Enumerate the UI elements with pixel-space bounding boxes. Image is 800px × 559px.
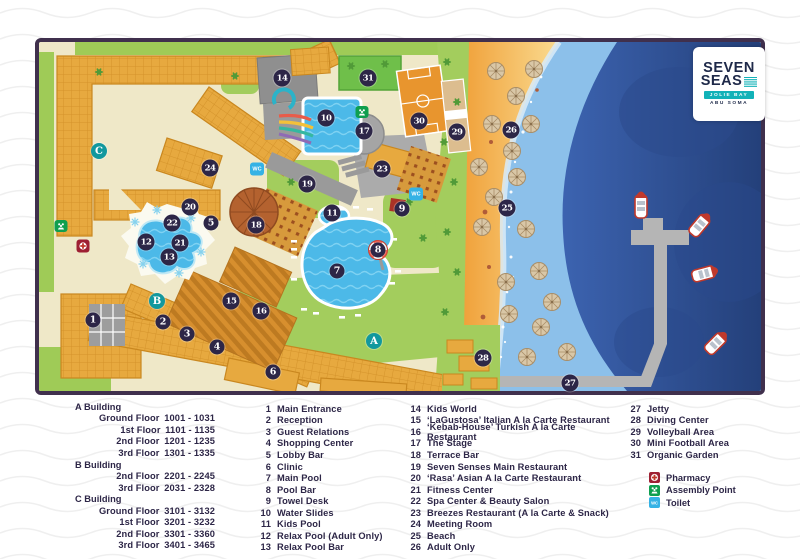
- legend-item-label: Guest Relations: [277, 427, 349, 437]
- legend-symbols: PharmacyAssembly PointWCToilet: [649, 472, 795, 510]
- building-floor-row: 2nd Floor 2201 - 2245: [35, 470, 215, 482]
- legend-items-column-2: 14Kids World15‘LaGustosa’ Italian A la C…: [403, 403, 623, 553]
- legend-item: 29Volleyball Area: [625, 426, 795, 438]
- legend-item-number: 21: [403, 485, 421, 495]
- building-name: A Building: [75, 401, 215, 413]
- legend-item: 18Terrace Bar: [403, 449, 623, 461]
- legend-item: 31Organic Garden: [625, 449, 795, 461]
- legend-symbol-row: WCToilet: [649, 497, 795, 510]
- map-marker-28: 28: [475, 350, 492, 367]
- legend-item-number: 17: [403, 438, 421, 448]
- pharmacy-icon-box: [649, 472, 660, 483]
- legend-item: 9Towel Desk: [255, 495, 405, 507]
- legend-item-label: Main Pool: [277, 473, 322, 483]
- legend-item-number: 27: [625, 404, 641, 414]
- map-marker-26: 26: [503, 122, 520, 139]
- map-marker-11: 11: [324, 205, 341, 222]
- map-marker-22: 22: [164, 215, 181, 232]
- legend-item-label: Lobby Bar: [277, 450, 324, 460]
- pharmacy-icon: [79, 242, 88, 251]
- legend-item-label: Diving Center: [647, 415, 709, 425]
- seven-seas-logo: SEVEN SEAS JOLIE BAY ABU SOMA: [693, 47, 765, 121]
- legend-symbol-label: Pharmacy: [666, 473, 710, 483]
- legend-item-number: 14: [403, 404, 421, 414]
- legend-item-number: 31: [625, 450, 641, 460]
- legend-item-number: 6: [255, 462, 271, 472]
- legend-item-label: Mini Football Area: [647, 438, 729, 448]
- building-name: C Building: [75, 493, 215, 505]
- legend-item: 1Main Entrance: [255, 403, 405, 415]
- assembly-point-icon: [57, 222, 66, 231]
- legend-item: 23Breezes Restaurant (A la Carte & Snack…: [403, 507, 623, 519]
- map-marker-18: 18: [248, 217, 265, 234]
- legend-item-number: 22: [403, 496, 421, 506]
- building-floor-row: 3rd Floor 1301 - 1335: [35, 447, 215, 459]
- legend-item-number: 11: [255, 519, 271, 529]
- pharmacy-icon: [650, 473, 659, 482]
- legend-item: 4Shopping Center: [255, 438, 405, 450]
- map-marker-31: 31: [360, 70, 377, 87]
- legend-item-number: 8: [255, 485, 271, 495]
- legend-item-number: 26: [403, 542, 421, 552]
- map-marker-13: 13: [161, 249, 178, 266]
- map-marker-3: 3: [180, 327, 195, 342]
- legend-item: 22Spa Center & Beauty Salon: [403, 495, 623, 507]
- legend-item-label: ‘Rasa’ Asian A la Carte Restaurant: [427, 473, 581, 483]
- legend-items-column-1: 1Main Entrance2Reception3Guest Relations…: [255, 403, 405, 553]
- map-marker-6: 6: [266, 365, 281, 380]
- logo-waves-icon: [744, 76, 757, 88]
- map-building-marker-C: C: [91, 143, 107, 159]
- legend-symbol-label: Assembly Point: [666, 485, 736, 495]
- legend-item: 28Diving Center: [625, 415, 795, 427]
- legend-item-number: 10: [255, 508, 271, 518]
- legend-item: 16‘Kebab-House’ Turkish A la Carte Resta…: [403, 426, 623, 438]
- building-floor-row: 2nd Floor 3301 - 3360: [35, 528, 215, 540]
- legend-item-number: 2: [255, 415, 271, 425]
- map-marker-5: 5: [204, 216, 219, 231]
- legend-item-label: Reception: [277, 415, 323, 425]
- assembly-point-icon: [650, 486, 659, 495]
- legend-item: 12Relax Pool (Adult Only): [255, 530, 405, 542]
- legend-item-label: Jetty: [647, 404, 669, 414]
- legend-item: 13Relax Pool Bar: [255, 542, 405, 554]
- legend-item-label: Clinic: [277, 462, 303, 472]
- legend-item-label: Spa Center & Beauty Salon: [427, 496, 549, 506]
- map-marker-7: 7: [330, 264, 345, 279]
- legend-symbol-label: Toilet: [666, 498, 690, 508]
- map-marker-8: 8: [371, 243, 386, 258]
- legend-symbol-row: Pharmacy: [649, 472, 795, 485]
- building-floor-row: 3rd Floor 2031 - 2328: [35, 482, 215, 494]
- legend-item: 30Mini Football Area: [625, 438, 795, 450]
- legend-item-label: Kids Pool: [277, 519, 321, 529]
- legend-item-label: Towel Desk: [277, 496, 328, 506]
- legend-item-number: 28: [625, 415, 641, 425]
- building-floor-row: 3rd Floor 3401 - 3465: [35, 540, 215, 552]
- legend-item-number: 30: [625, 438, 641, 448]
- legend-item: 26Adult Only: [403, 542, 623, 554]
- legend-item: 3Guest Relations: [255, 426, 405, 438]
- legend-items-column-3: 27Jetty28Diving Center29Volleyball Area3…: [625, 403, 795, 509]
- legend-item-label: Pool Bar: [277, 485, 316, 495]
- legend-item-label: Organic Garden: [647, 450, 719, 460]
- map-marker-29: 29: [449, 124, 466, 141]
- legend-item-number: 18: [403, 450, 421, 460]
- legend-item-number: 16: [403, 427, 421, 437]
- legend-item: 27Jetty: [625, 403, 795, 415]
- wc-icon: WC: [409, 188, 423, 201]
- toilet-icon: WC: [650, 498, 659, 507]
- map-marker-30: 30: [411, 113, 428, 130]
- building-floor-row: 2nd Floor 1201 - 1235: [35, 436, 215, 448]
- map-marker-19: 19: [299, 176, 316, 193]
- legend-item-number: 25: [403, 531, 421, 541]
- legend-item-number: 9: [255, 496, 271, 506]
- svg-text:WC: WC: [651, 501, 658, 506]
- building-name: B Building: [75, 459, 215, 471]
- map-marker-9: 9: [395, 202, 410, 217]
- legend-item: 25Beach: [403, 530, 623, 542]
- assembly-point-icon-box: [649, 485, 660, 496]
- resort-map-page: 1234567891011121314151617181920212223242…: [0, 0, 800, 559]
- legend-item: 8Pool Bar: [255, 484, 405, 496]
- building-floor-row: Ground Floor 1001 - 1031: [35, 413, 215, 425]
- legend-item-label: Meeting Room: [427, 519, 492, 529]
- map-marker-10: 10: [318, 110, 335, 127]
- legend-item-number: 7: [255, 473, 271, 483]
- map-marker-21: 21: [172, 235, 189, 252]
- assembly-point-icon: [356, 106, 369, 118]
- toilet-icon-box: WC: [649, 497, 660, 508]
- legend-item-number: 19: [403, 462, 421, 472]
- legend-item-number: 23: [403, 508, 421, 518]
- map-marker-25: 25: [499, 200, 516, 217]
- map-marker-23: 23: [374, 161, 391, 178]
- legend-item: 20‘Rasa’ Asian A la Carte Restaurant: [403, 472, 623, 484]
- legend-item: 11Kids Pool: [255, 518, 405, 530]
- legend-item-label: Breezes Restaurant (A la Carte & Snack): [427, 508, 609, 518]
- legend-item-label: Terrace Bar: [427, 450, 479, 460]
- map-marker-14: 14: [274, 70, 291, 87]
- logo-subtitle: ABU SOMA: [710, 101, 748, 106]
- legend-item-label: Relax Pool (Adult Only): [277, 531, 383, 541]
- legend-item-label: The Stage: [427, 438, 472, 448]
- legend-item-label: Fitness Center: [427, 485, 493, 495]
- pharmacy-icon: [77, 240, 90, 253]
- map-marker-17: 17: [356, 123, 373, 140]
- legend-item-number: 24: [403, 519, 421, 529]
- map-marker-4: 4: [210, 340, 225, 355]
- logo-banner: JOLIE BAY: [704, 91, 754, 99]
- legend-item: 6Clinic: [255, 461, 405, 473]
- building-floor-row: 1st Floor 3201 - 3232: [35, 516, 215, 528]
- legend-item: 14Kids World: [403, 403, 623, 415]
- legend-item-number: 13: [255, 542, 271, 552]
- legend-item-number: 3: [255, 427, 271, 437]
- legend-item-label: Relax Pool Bar: [277, 542, 344, 552]
- legend-item-number: 15: [403, 415, 421, 425]
- legend-item-label: Seven Senses Main Restaurant: [427, 462, 567, 472]
- legend-item: 10Water Slides: [255, 507, 405, 519]
- map-marker-1: 1: [86, 313, 101, 328]
- building-floor-row: 1st Floor 1101 - 1135: [35, 424, 215, 436]
- map-building-marker-B: B: [149, 293, 165, 309]
- assembly-point-icon: [55, 220, 68, 232]
- legend-item: 2Reception: [255, 415, 405, 427]
- map-marker-layer: 1234567891011121314151617181920212223242…: [39, 42, 761, 391]
- legend-item-number: 1: [255, 404, 271, 414]
- assembly-point-icon: [358, 108, 367, 117]
- legend-item-number: 20: [403, 473, 421, 483]
- map-marker-27: 27: [562, 375, 579, 392]
- legend-item-label: Water Slides: [277, 508, 334, 518]
- legend-item-number: 12: [255, 531, 271, 541]
- legend-item: 19Seven Senses Main Restaurant: [403, 461, 623, 473]
- legend-item-label: Main Entrance: [277, 404, 342, 414]
- legend-item-label: Volleyball Area: [647, 427, 714, 437]
- map-marker-2: 2: [156, 315, 171, 330]
- map-marker-20: 20: [182, 199, 199, 216]
- legend-item-number: 4: [255, 438, 271, 448]
- legend-item-label: Kids World: [427, 404, 477, 414]
- map-marker-15: 15: [223, 293, 240, 310]
- legend-item: 24Meeting Room: [403, 518, 623, 530]
- logo-line2: SEAS: [701, 75, 743, 88]
- legend-item-label: Beach: [427, 531, 455, 541]
- legend-buildings-column: A BuildingGround Floor 1001 - 10311st Fl…: [35, 401, 215, 551]
- legend-item-number: 29: [625, 427, 641, 437]
- map-marker-16: 16: [253, 303, 270, 320]
- legend-item: 7Main Pool: [255, 472, 405, 484]
- legend-item-label: Adult Only: [427, 542, 475, 552]
- legend-symbol-row: Assembly Point: [649, 484, 795, 497]
- legend-item-label: Shopping Center: [277, 438, 353, 448]
- legend-item: 5Lobby Bar: [255, 449, 405, 461]
- legend-item-number: 5: [255, 450, 271, 460]
- map-marker-12: 12: [138, 234, 155, 251]
- map-marker-24: 24: [202, 160, 219, 177]
- legend-item: 21Fitness Center: [403, 484, 623, 496]
- map-building-marker-A: A: [366, 333, 382, 349]
- building-floor-row: Ground Floor 3101 - 3132: [35, 505, 215, 517]
- wc-icon: WC: [250, 163, 264, 176]
